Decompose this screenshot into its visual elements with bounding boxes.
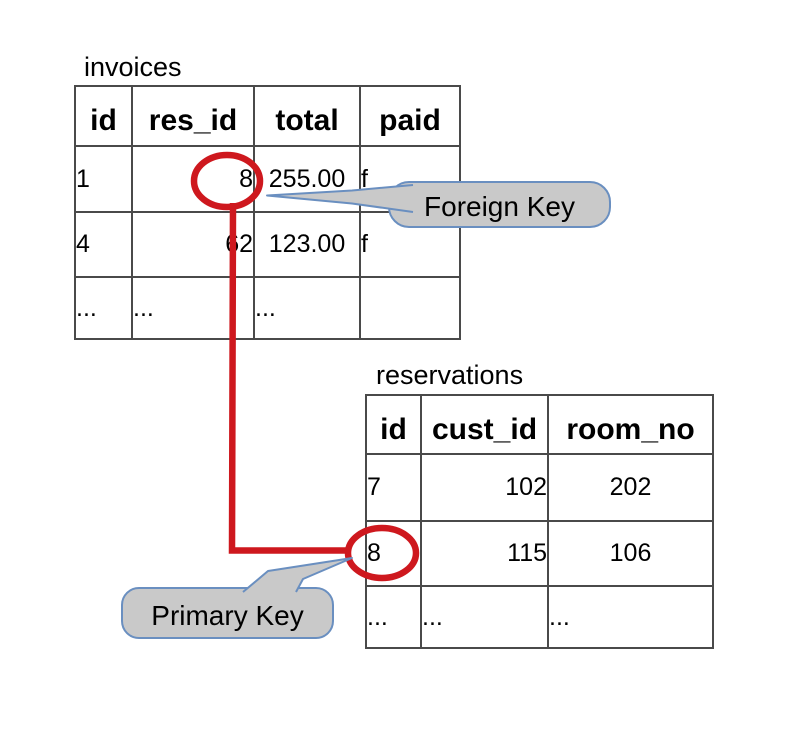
invoices-table-title: invoices bbox=[84, 53, 182, 83]
table-cell: 106 bbox=[548, 521, 713, 586]
reservations-row-1: 7 102 202 bbox=[366, 454, 713, 521]
column-header-paid: paid bbox=[360, 86, 460, 146]
invoices-row-ellipsis: ... ... ... bbox=[75, 277, 460, 339]
table-cell: ... bbox=[132, 277, 254, 339]
table-cell-primary-key-value: 8 bbox=[366, 521, 421, 586]
column-header-room-no: room_no bbox=[548, 395, 713, 454]
table-cell: ... bbox=[366, 586, 421, 648]
table-cell: 1 bbox=[75, 146, 132, 212]
invoices-header-row: id res_id total paid bbox=[75, 86, 460, 146]
table-cell: 62 bbox=[132, 212, 254, 277]
table-cell: 255.00 bbox=[254, 146, 360, 212]
reservations-header-row: id cust_id room_no bbox=[366, 395, 713, 454]
table-cell: ... bbox=[548, 586, 713, 648]
column-header-cust-id: cust_id bbox=[421, 395, 548, 454]
reservations-table-title: reservations bbox=[376, 361, 523, 391]
table-cell: 202 bbox=[548, 454, 713, 521]
reservations-row-ellipsis: ... ... ... bbox=[366, 586, 713, 648]
column-header-res-id: res_id bbox=[132, 86, 254, 146]
table-cell: ... bbox=[254, 277, 360, 339]
table-cell-foreign-key-value: 8 bbox=[132, 146, 254, 212]
primary-key-callout-tail bbox=[243, 558, 352, 592]
column-header-total: total bbox=[254, 86, 360, 146]
table-cell: 123.00 bbox=[254, 212, 360, 277]
column-header-id: id bbox=[75, 86, 132, 146]
reservations-table: id cust_id room_no 7 102 202 8 115 106 .… bbox=[365, 394, 714, 649]
table-cell: ... bbox=[75, 277, 132, 339]
reservations-row-2: 8 115 106 bbox=[366, 521, 713, 586]
table-cell: ... bbox=[421, 586, 548, 648]
foreign-key-callout-label: Foreign Key bbox=[389, 182, 610, 227]
column-header-id: id bbox=[366, 395, 421, 454]
database-key-diagram: invoices id res_id total paid 1 8 255.00… bbox=[0, 0, 794, 756]
table-cell: 4 bbox=[75, 212, 132, 277]
table-cell: 115 bbox=[421, 521, 548, 586]
primary-key-callout-label: Primary Key bbox=[122, 588, 333, 638]
table-cell: 7 bbox=[366, 454, 421, 521]
table-cell bbox=[360, 277, 460, 339]
table-cell: 102 bbox=[421, 454, 548, 521]
